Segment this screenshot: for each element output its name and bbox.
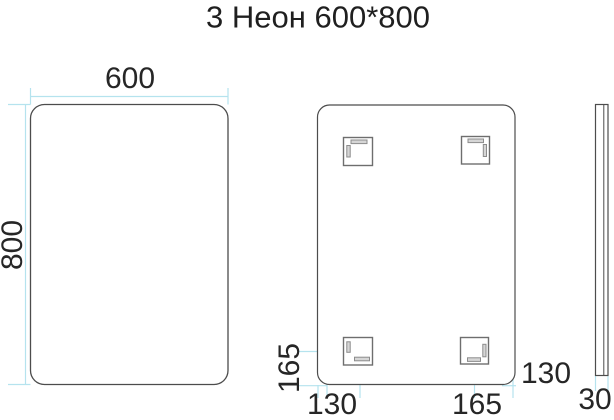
technical-drawing-page: 3 Неон 600*800 600 800 165 130 165 130 3…: [0, 0, 614, 420]
bracket-bottom-right: [461, 338, 489, 365]
side-view: [596, 105, 609, 392]
bracket-bottom-left: [344, 338, 373, 366]
side-view-outline: [596, 105, 609, 376]
front-height-dimension-label: 800: [0, 220, 28, 270]
bracket-slot-vertical: [483, 344, 486, 357]
drawing-title: 3 Неон 600*800: [206, 2, 430, 33]
bracket-slot-horizontal: [355, 357, 370, 361]
bracket-slot-horizontal: [351, 140, 367, 144]
bracket-slot-vertical: [347, 342, 350, 353]
back-view: [298, 105, 516, 398]
back-bottom-left-offset-dimension-label: 130: [307, 390, 357, 420]
bracket-top-right: [462, 137, 490, 165]
back-bottom-right-offset-dimension-label: 165: [452, 390, 502, 420]
front-view: [8, 88, 228, 385]
bracket-top-left: [344, 138, 373, 166]
bracket-slot-horizontal: [468, 358, 481, 362]
front-view-outline: [31, 105, 229, 385]
bracket-slot-vertical: [347, 146, 350, 158]
bracket-slot-vertical: [483, 145, 486, 157]
back-right-offset-dimension-label: 130: [521, 359, 571, 389]
back-left-offset-dimension-label: 165: [275, 343, 305, 393]
bracket-slot-horizontal: [468, 139, 484, 143]
front-width-dimension-label: 600: [105, 64, 155, 94]
side-depth-dimension-label: 30: [578, 385, 611, 415]
